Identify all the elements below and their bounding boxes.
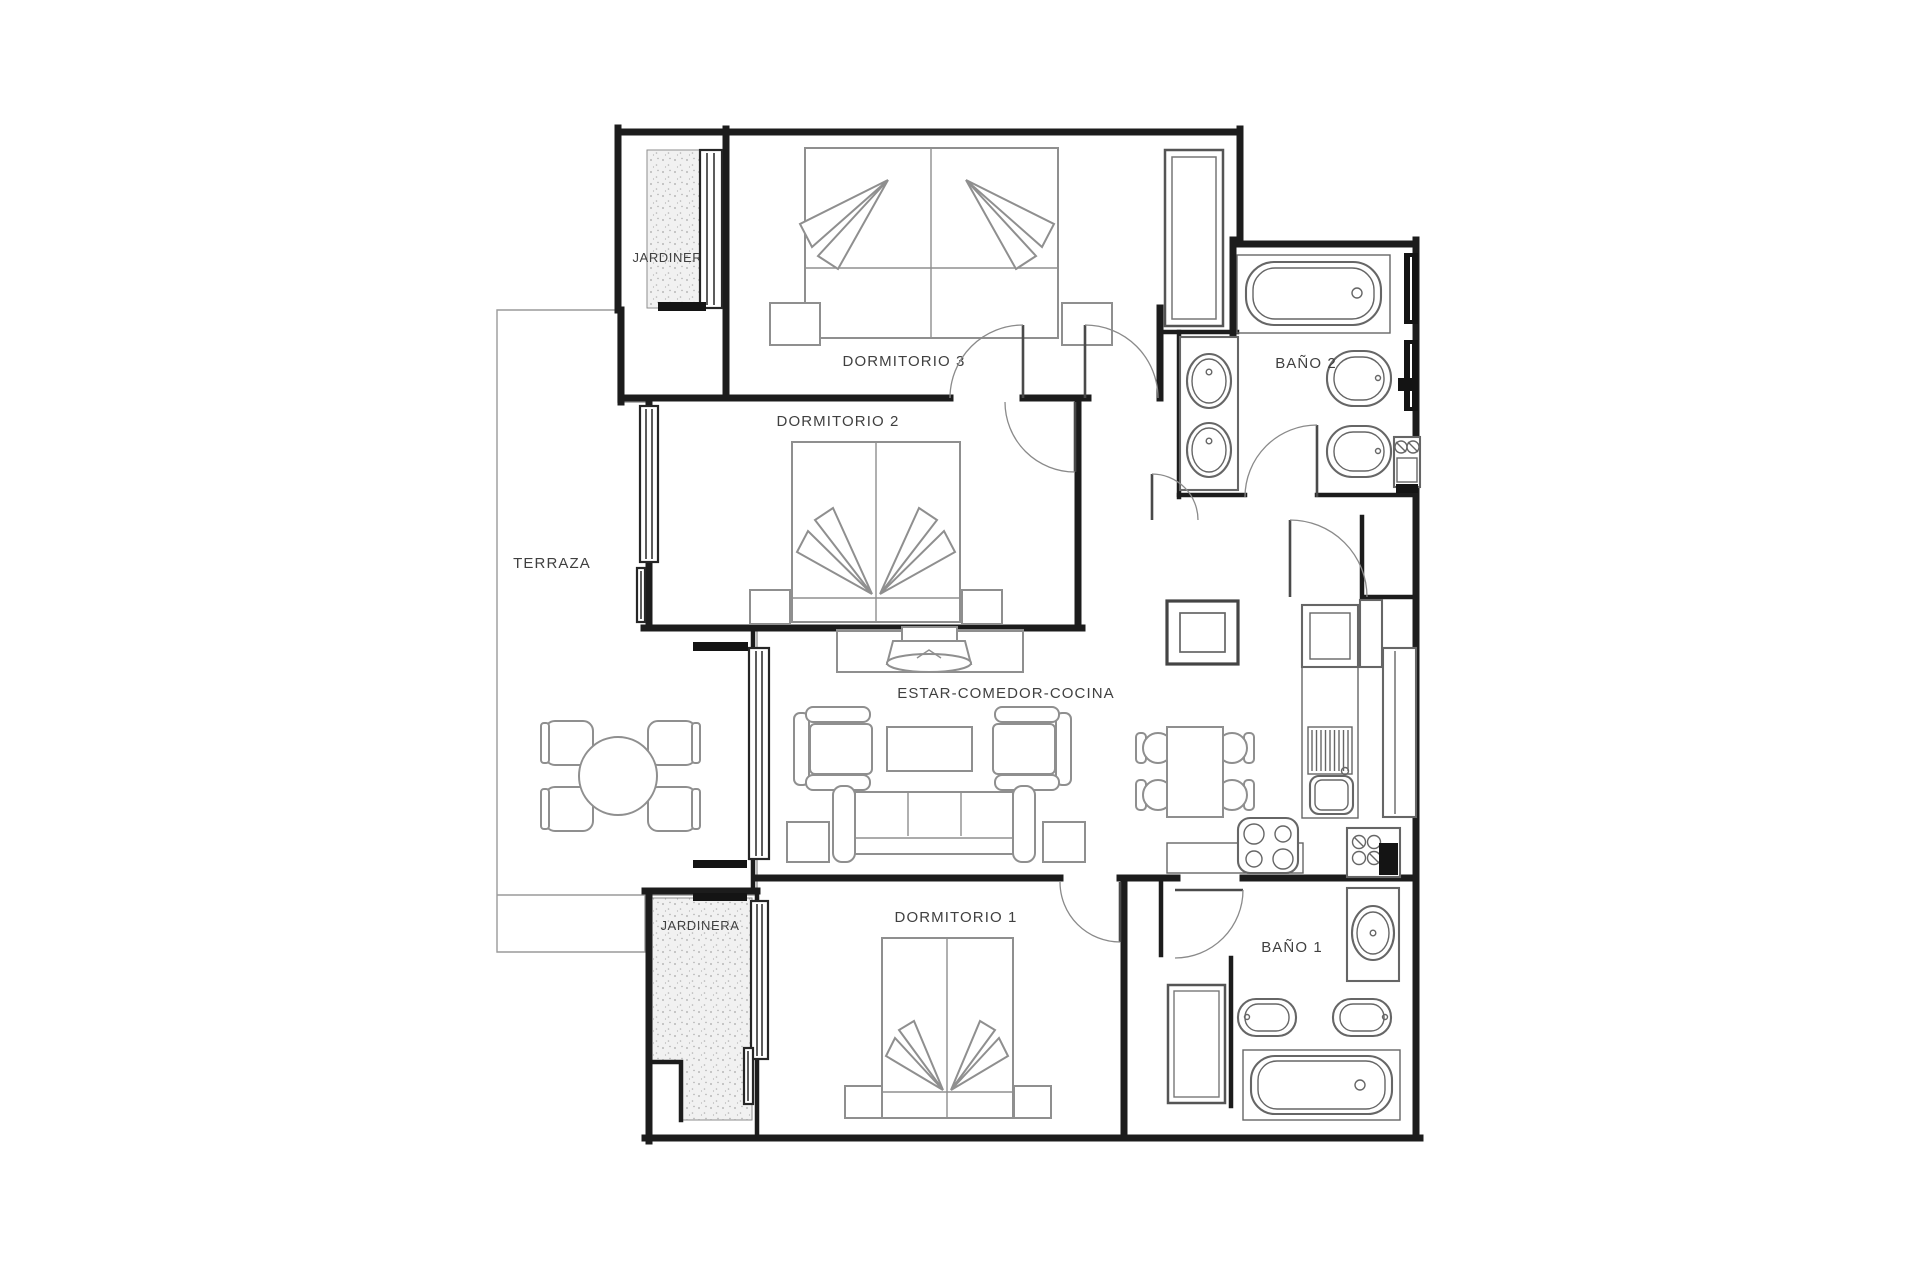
window-sill	[693, 860, 747, 868]
kitchen-cabinet	[1360, 600, 1382, 667]
window-sill	[693, 893, 747, 901]
floor-plan: TERRAZA JARDINERA JARDINERA	[0, 0, 1920, 1280]
column-shaft	[1167, 601, 1238, 664]
wardrobe-icon	[1168, 985, 1225, 1103]
window-icon	[749, 648, 769, 859]
vanity-icon	[1347, 888, 1399, 981]
nightstand-icon	[770, 303, 820, 345]
room-label-terraza: TERRAZA	[513, 555, 591, 572]
window-sill	[693, 642, 748, 651]
room-label-bano-2: BAÑO 2	[1275, 355, 1337, 372]
window-icon	[751, 901, 768, 1059]
toilet-icon	[1327, 426, 1391, 477]
window-icon	[700, 150, 722, 308]
room-label-dormitorio-1: DORMITORIO 1	[895, 909, 1018, 926]
window-icon	[637, 568, 645, 622]
window-icon	[640, 406, 658, 562]
wardrobe-icon	[1165, 150, 1223, 326]
washer-icon	[1347, 828, 1400, 877]
room-label-dormitorio-3: DORMITORIO 3	[843, 353, 966, 370]
side-table-icon	[787, 822, 829, 862]
bathtub-icon	[1237, 255, 1390, 333]
armchair-icon	[794, 707, 872, 790]
window-icon	[744, 1048, 753, 1104]
coffee-table-icon	[887, 727, 972, 771]
side-table-icon	[1043, 822, 1085, 862]
nightstand-icon	[750, 590, 790, 624]
room-label-bano-1: BAÑO 1	[1261, 939, 1323, 956]
vanity-icon	[1180, 337, 1238, 490]
room-label-dormitorio-2: DORMITORIO 2	[777, 413, 900, 430]
toilet-icon	[1333, 999, 1391, 1036]
cooktop-icon	[1238, 818, 1298, 873]
terrace-table-icon	[579, 737, 657, 815]
bathtub-icon	[1243, 1050, 1400, 1120]
window-sill	[658, 302, 706, 311]
planter-bottom-label: JARDINERA	[660, 918, 739, 933]
kitchen-counter	[1383, 648, 1416, 817]
room-label-estar: ESTAR-COMEDOR-COCINA	[897, 685, 1115, 702]
armchair-icon	[993, 707, 1071, 790]
nightstand-icon	[1062, 303, 1112, 345]
bidet-icon	[1238, 999, 1296, 1036]
fridge-icon	[1302, 605, 1358, 667]
sofa-icon	[833, 786, 1035, 862]
nightstand-icon	[1014, 1086, 1051, 1118]
planter-top-bed	[647, 150, 700, 308]
nightstand-icon	[962, 590, 1002, 624]
nightstand-icon	[845, 1086, 882, 1118]
